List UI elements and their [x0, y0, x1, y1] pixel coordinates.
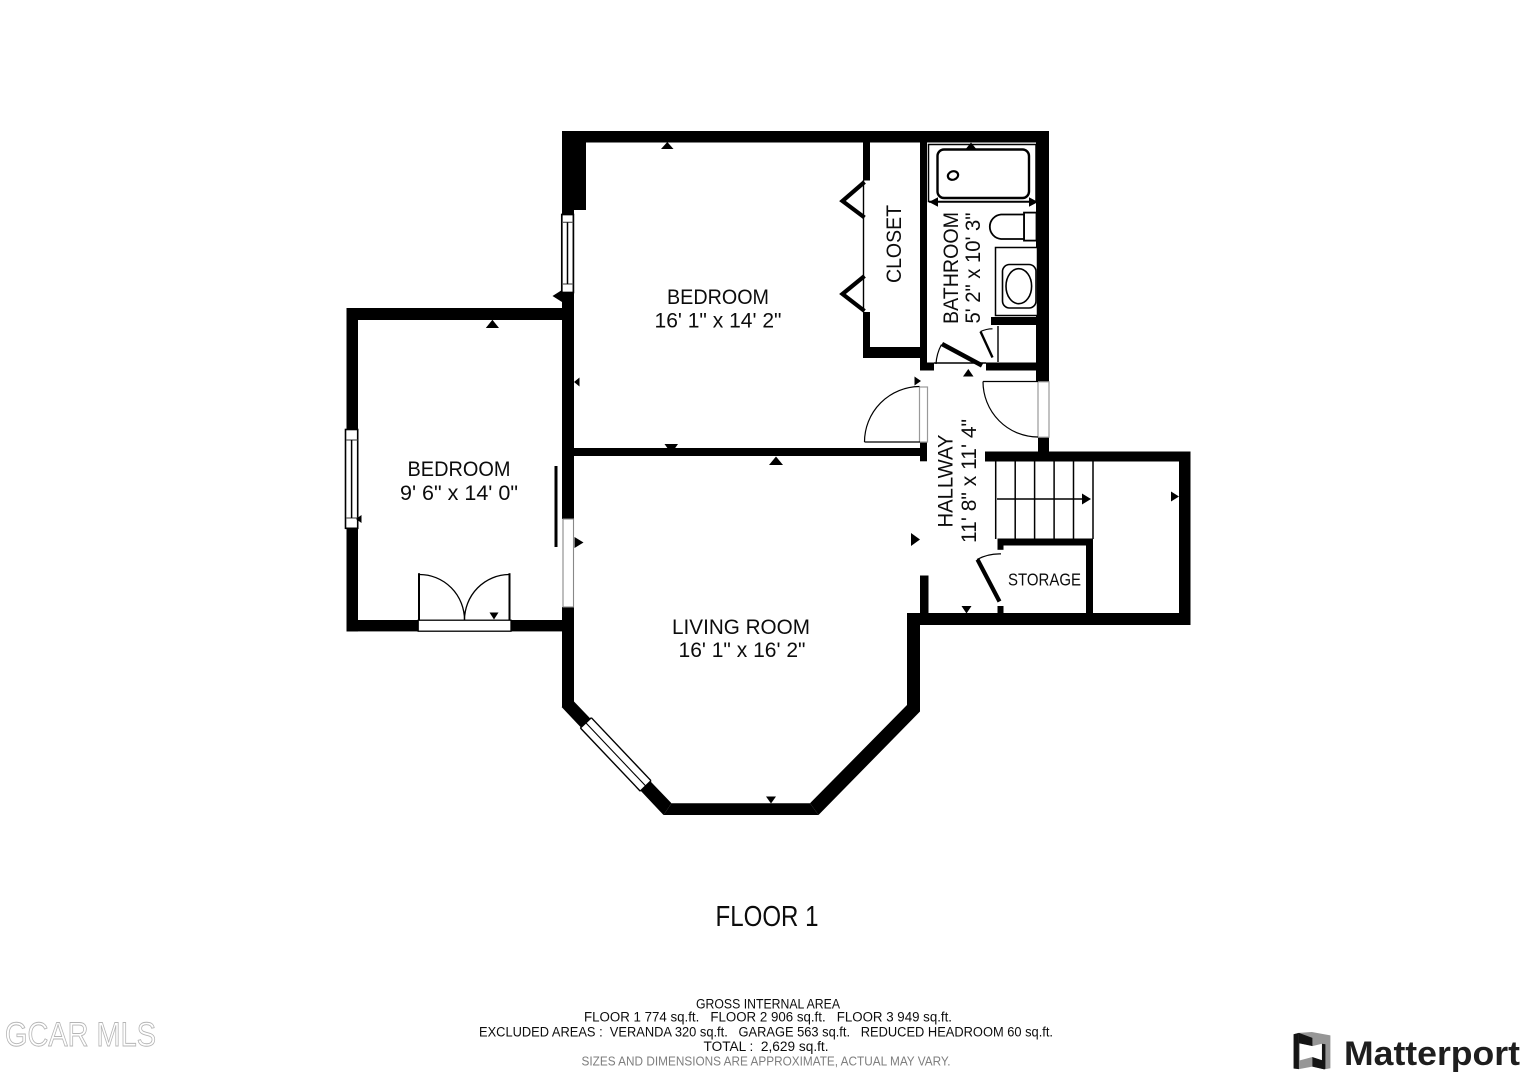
svg-text:BEDROOM: BEDROOM [667, 285, 769, 309]
svg-text:5' 2" x 10' 3": 5' 2" x 10' 3" [961, 213, 985, 324]
svg-text:16' 1" x 14' 2": 16' 1" x 14' 2" [655, 309, 782, 333]
svg-text:BATHROOM: BATHROOM [939, 212, 963, 324]
svg-text:Matterport: Matterport [1344, 1035, 1520, 1073]
svg-text:11' 8" x 11' 4": 11' 8" x 11' 4" [957, 419, 981, 543]
svg-text:9' 6" x 14' 0": 9' 6" x 14' 0" [400, 481, 518, 505]
svg-text:FLOOR 1 774 sq.ft. FLOOR 2 9: FLOOR 1 774 sq.ft. FLOOR 2 906 sq.ft. FL… [584, 1010, 952, 1025]
svg-text:STORAGE: STORAGE [1008, 570, 1081, 590]
svg-text:LIVING ROOM: LIVING ROOM [672, 615, 810, 639]
svg-text:BEDROOM: BEDROOM [408, 457, 511, 481]
svg-text:GCAR MLS: GCAR MLS [5, 1016, 156, 1054]
svg-text:CLOSET: CLOSET [882, 205, 906, 283]
svg-text:HALLWAY: HALLWAY [934, 435, 958, 528]
svg-text:TOTAL : 2,629 sq.ft.: TOTAL : 2,629 sq.ft. [704, 1039, 829, 1054]
svg-text:EXCLUDED AREAS : VERANDA 320: EXCLUDED AREAS : VERANDA 320 sq.ft. GARA… [479, 1025, 1053, 1040]
svg-text:SIZES AND DIMENSIONS ARE APPRO: SIZES AND DIMENSIONS ARE APPROXIMATE, AC… [582, 1054, 951, 1069]
svg-text:FLOOR 1: FLOOR 1 [716, 901, 819, 933]
svg-text:16' 1" x 16' 2": 16' 1" x 16' 2" [679, 638, 806, 662]
